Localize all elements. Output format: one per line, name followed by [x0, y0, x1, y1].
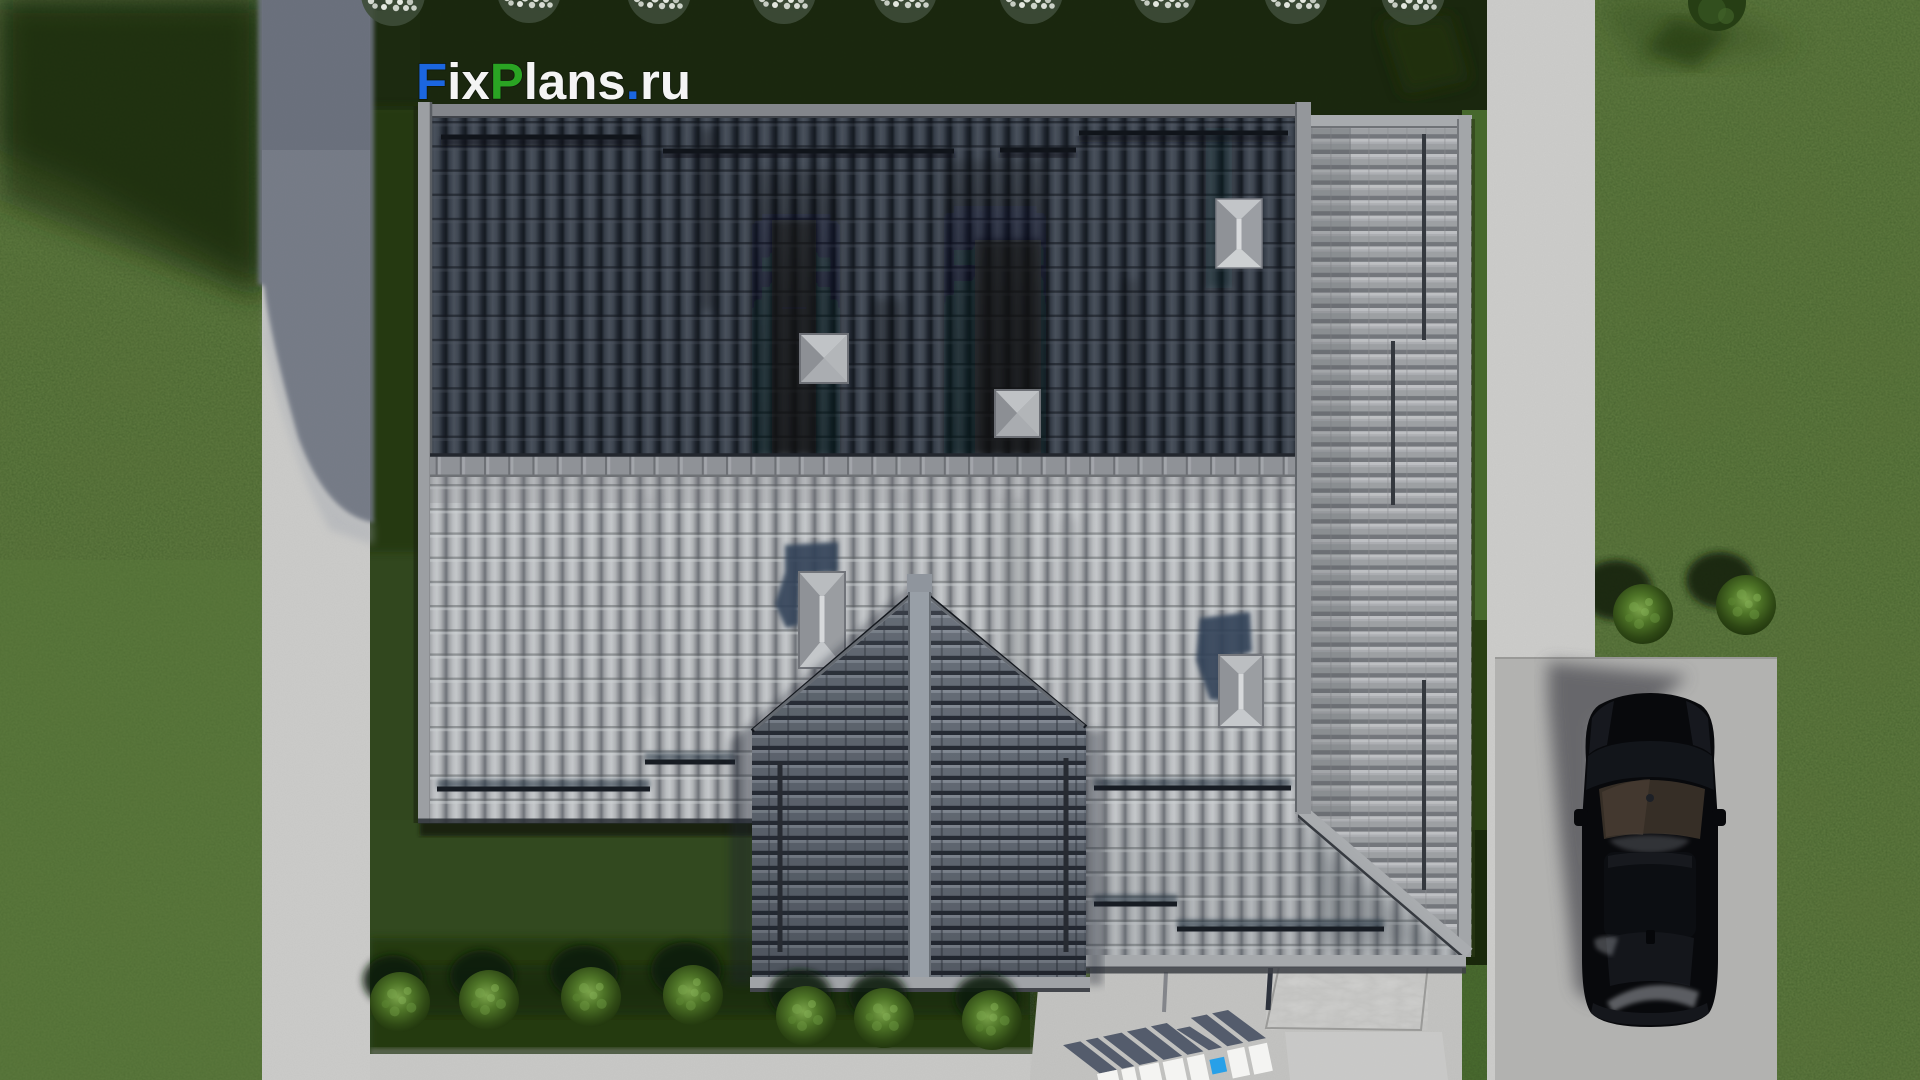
svg-text:FixPlans.ru: FixPlans.ru — [416, 53, 691, 110]
